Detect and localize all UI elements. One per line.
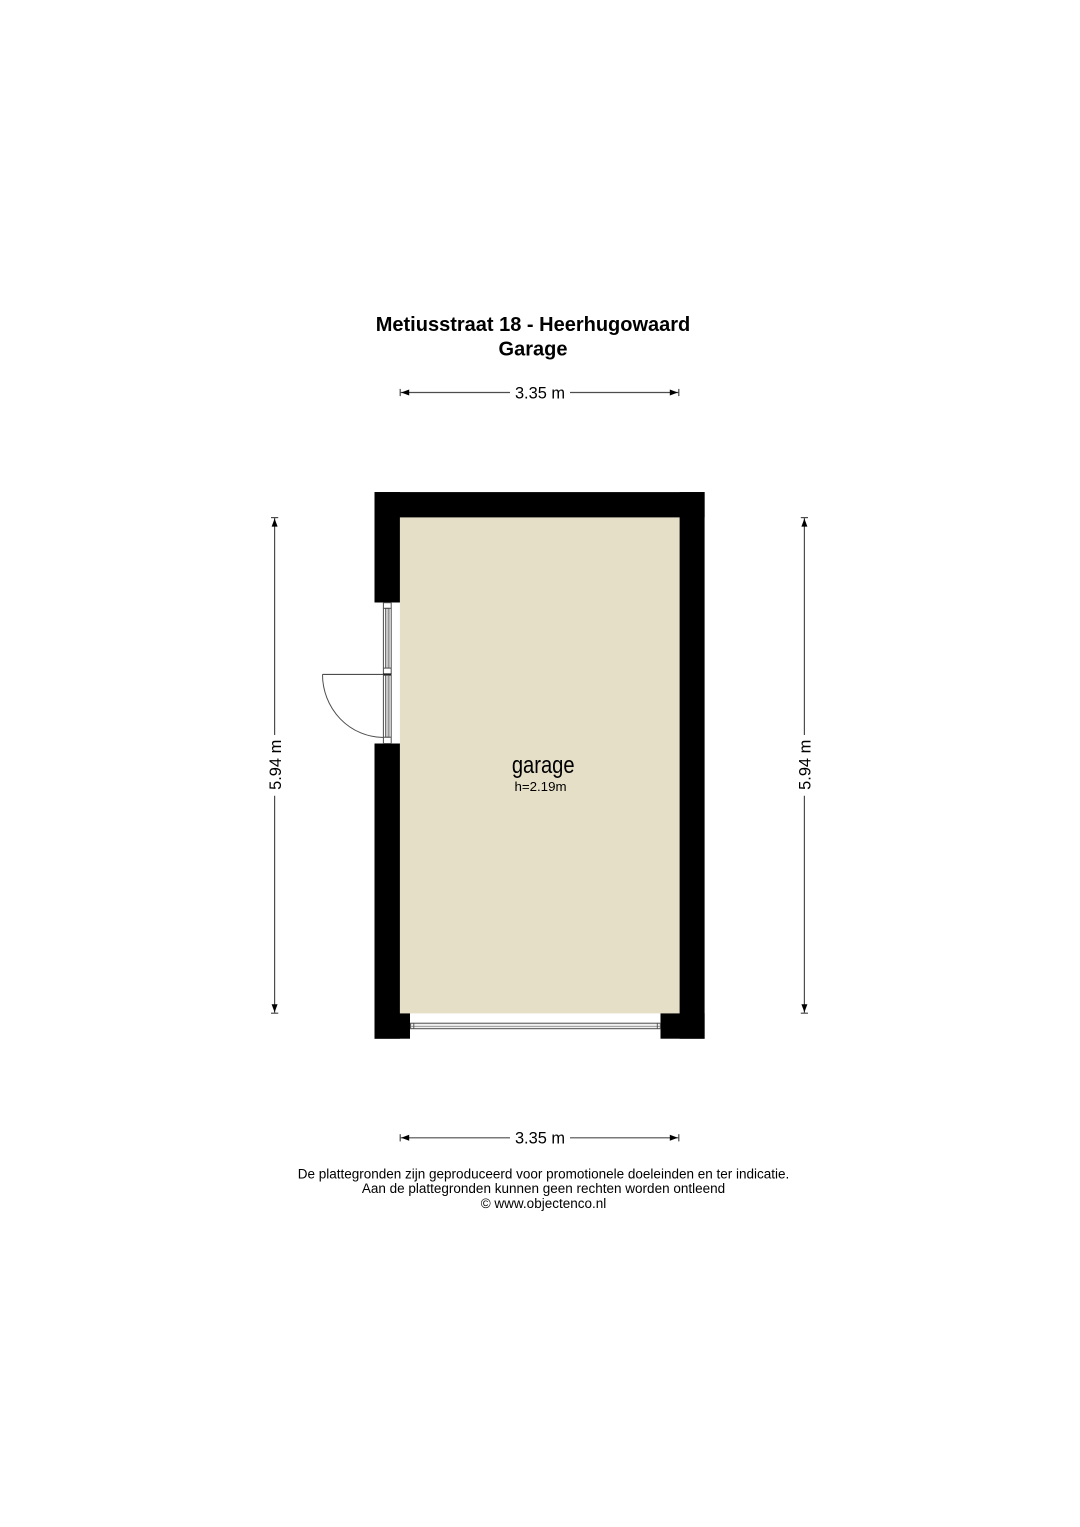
svg-text:5.94 m: 5.94 m (796, 740, 814, 790)
svg-text:© www.objectenco.nl: © www.objectenco.nl (481, 1196, 607, 1211)
svg-text:3.35 m: 3.35 m (515, 384, 565, 402)
svg-text:Garage: Garage (499, 339, 568, 361)
svg-text:3.35 m: 3.35 m (515, 1130, 565, 1148)
svg-text:Metiusstraat 18 - Heerhugowaar: Metiusstraat 18 - Heerhugowaard (376, 314, 691, 336)
svg-text:Aan de plattegronden kunnen ge: Aan de plattegronden kunnen geen rechten… (362, 1181, 725, 1196)
svg-text:h=2.19m: h=2.19m (514, 779, 566, 794)
svg-text:garage: garage (512, 752, 575, 779)
svg-text:De plattegronden zijn geproduc: De plattegronden zijn geproduceerd voor … (298, 1166, 790, 1181)
svg-text:5.94 m: 5.94 m (267, 740, 285, 790)
